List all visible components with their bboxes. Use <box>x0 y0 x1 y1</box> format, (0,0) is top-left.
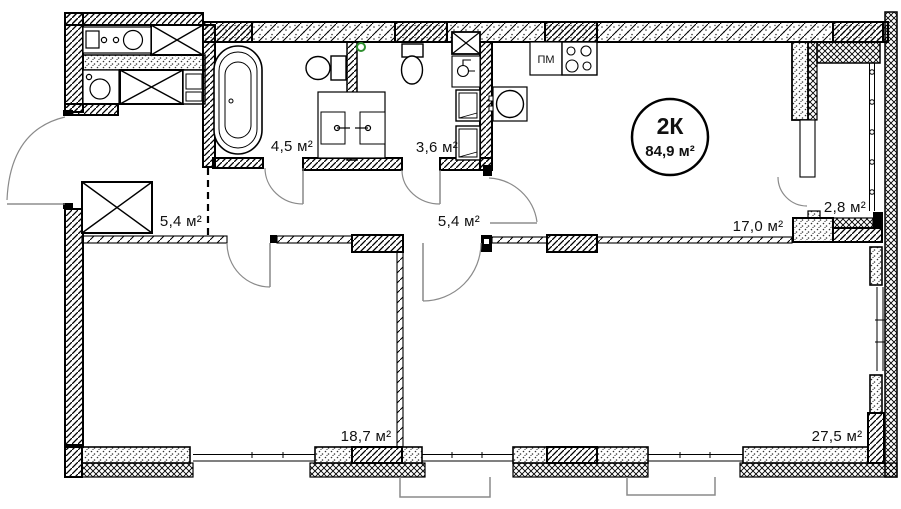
window-right <box>875 287 885 371</box>
left-wall-upper <box>65 13 83 112</box>
windows <box>193 287 885 461</box>
balcony-top-wall <box>817 42 880 63</box>
bottom-wall-pier <box>547 447 597 463</box>
cabinet-drawer <box>186 74 202 89</box>
door-arc <box>402 170 440 204</box>
door-arc <box>423 243 481 301</box>
hall-entry-area-label: 5,4 м² <box>160 213 202 230</box>
bottom-wall-outer <box>740 463 897 477</box>
bottom-wall-inner <box>82 447 190 463</box>
balcony-outline <box>627 477 715 495</box>
entry-door-arc <box>7 117 65 200</box>
corner-pier <box>793 218 833 242</box>
toilet-icon <box>402 44 424 84</box>
balcony-bottom-stub <box>808 211 820 218</box>
dishwasher-icon: ПМ <box>530 42 562 75</box>
balcony-left-wall-outer <box>808 42 817 120</box>
left-wall-lower <box>65 209 83 447</box>
top-wall-pier <box>395 22 447 42</box>
window <box>193 452 315 461</box>
toilet-icon <box>306 56 346 80</box>
bedrooms: 18,7 м² 27,5 м² <box>227 243 862 447</box>
bedroom-divider-wall <box>397 252 403 447</box>
partition-pier <box>547 235 597 252</box>
door-arc <box>778 177 807 206</box>
door-arc <box>227 243 270 287</box>
door-jamb <box>270 235 277 243</box>
bathroom-area-label: 4,5 м² <box>271 138 313 155</box>
balcony: 2,8 м² <box>778 42 883 242</box>
right-wall-outer <box>885 12 897 477</box>
bottom-wall-inner <box>315 447 352 463</box>
balcony-door-leaf <box>800 120 815 177</box>
utility-divider-wall <box>83 55 205 70</box>
kitchen-partition <box>597 237 792 243</box>
top-wall-pier <box>545 22 597 42</box>
vent-marker-icon <box>357 43 365 51</box>
balcony-left-wall <box>792 42 808 120</box>
bedroom-area-label: 18,7 м² <box>341 428 392 445</box>
bottom-wall-inner <box>402 447 422 463</box>
hall-inner: 5,4 м² <box>82 165 792 252</box>
top-wall-pier <box>833 22 883 42</box>
utility-niche <box>65 13 205 115</box>
floor-plan: 4,5 м² 3,6 м² <box>0 0 901 509</box>
balcony-glazing <box>870 63 875 211</box>
door-jamb-notch <box>484 239 489 244</box>
bottom-wall-corner-pier <box>65 445 82 477</box>
corner-pier <box>833 228 882 242</box>
unit-area-label: 84,9 м² <box>645 143 694 160</box>
bathroom-bottom-wall <box>213 158 263 168</box>
cabinet-drawer <box>186 92 202 101</box>
unit-type-label: 2К <box>657 113 685 139</box>
bathroom: 4,5 м² <box>203 25 402 204</box>
right-wall-pier <box>870 247 882 285</box>
bottom-wall-pier <box>352 447 402 463</box>
bottom-wall-inner <box>513 447 547 463</box>
counter-fixture <box>86 31 99 48</box>
door-jamb <box>483 165 492 176</box>
hall-partition <box>277 236 352 243</box>
utility-bottom-wall <box>65 104 118 115</box>
bottom-wall-outer <box>82 463 193 477</box>
unit-badge: 2К 84,9 м² <box>632 99 708 175</box>
right-wall-corner-pier <box>868 413 884 463</box>
balcony-area-label: 2,8 м² <box>824 199 866 216</box>
door-arc <box>489 178 537 222</box>
wc-area-label: 3,6 м² <box>416 139 458 156</box>
corner-block <box>873 212 883 228</box>
floor-plan-drawing: 4,5 м² 3,6 м² <box>0 0 901 509</box>
door-arc <box>265 168 303 204</box>
bottom-wall-inner <box>597 447 648 463</box>
living-room-area-label: 27,5 м² <box>812 428 863 445</box>
utility-top-wall <box>65 13 203 25</box>
balcony-outlines <box>400 477 715 497</box>
bottom-wall-outer <box>310 463 425 477</box>
hall-entry: 5,4 м² <box>7 117 208 236</box>
bathtub-icon <box>214 46 262 154</box>
vanity-icon <box>318 92 385 158</box>
cabinet-icon <box>456 90 480 121</box>
bottom-wall-inner <box>743 447 868 463</box>
window <box>422 452 513 461</box>
balcony-bottom-wall <box>833 218 873 228</box>
hall-partition <box>82 236 227 243</box>
stove-icon <box>562 42 597 75</box>
bottom-wall-outer <box>513 463 648 477</box>
cabinet-icon <box>456 126 480 160</box>
kitchen-area-label: 17,0 м² <box>733 218 784 235</box>
washing-machine-icon <box>489 87 527 121</box>
partition-pier <box>352 235 403 252</box>
hall-partition <box>492 237 547 243</box>
kitchen-living: ПМ 2К 84,9 м² 17,0 м² <box>489 42 783 235</box>
hall-inner-area-label: 5,4 м² <box>438 213 480 230</box>
washbasin-icon <box>452 56 480 87</box>
window <box>648 452 743 461</box>
balcony-outline <box>400 477 490 497</box>
right-wall-pier <box>870 375 882 413</box>
dishwasher-label: ПМ <box>537 54 554 66</box>
